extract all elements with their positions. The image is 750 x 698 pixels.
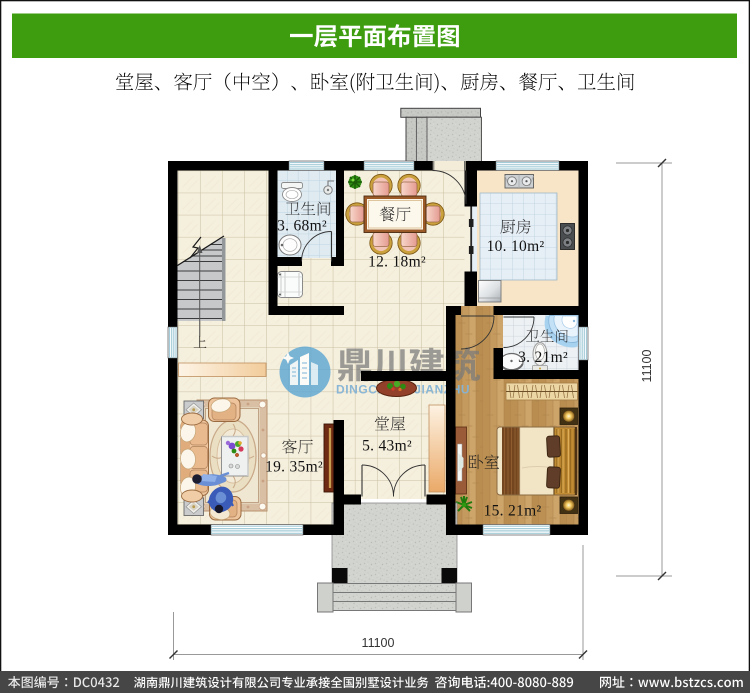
svg-text:11100: 11100 [640,350,654,383]
svg-text:11100: 11100 [362,636,395,650]
svg-text:5. 43m²: 5. 43m² [362,438,412,455]
svg-text:3. 21m²: 3. 21m² [518,349,568,366]
svg-text:3. 68m²: 3. 68m² [277,218,327,235]
svg-text:12. 18m²: 12. 18m² [368,254,426,271]
svg-text:10. 10m²: 10. 10m² [487,238,545,255]
svg-text:15. 21m²: 15. 21m² [484,503,542,520]
svg-text:19. 35m²: 19. 35m² [265,459,323,476]
